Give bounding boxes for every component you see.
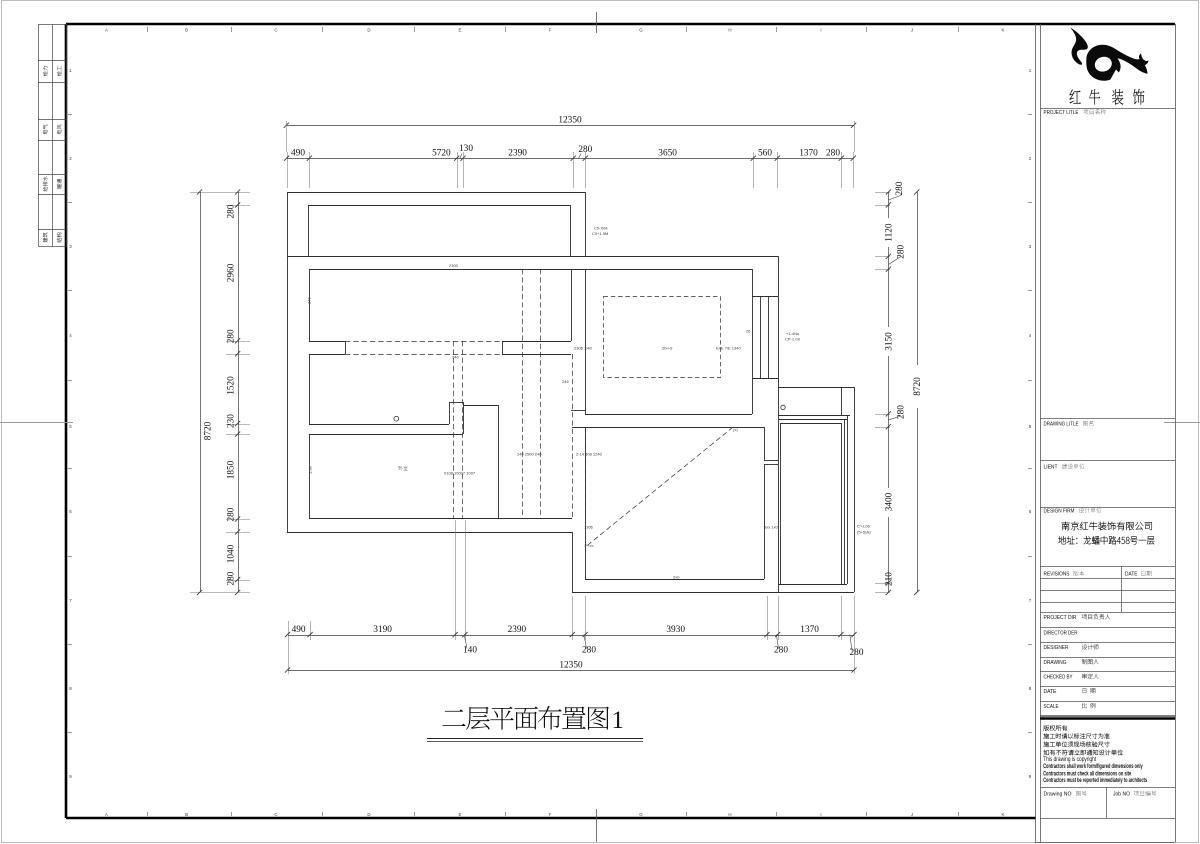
svg-text:DATE: DATE: [1044, 689, 1057, 695]
svg-text:2390: 2390: [508, 149, 527, 159]
svg-text:1: 1: [1029, 68, 1032, 73]
svg-text:1306: 1306: [584, 525, 594, 530]
svg-text:CHECKED BY: CHECKED BY: [1044, 675, 1073, 681]
svg-text:2br+9: 2br+9: [662, 346, 673, 351]
svg-text:CP-1.0X: CP-1.0X: [785, 337, 800, 342]
svg-text:246: 246: [562, 379, 569, 384]
svg-text:9: 9: [69, 774, 72, 779]
svg-text:E: E: [459, 28, 462, 33]
svg-text:E4E 7/E 1340: E4E 7/E 1340: [716, 346, 741, 351]
svg-text:F: F: [549, 812, 552, 817]
svg-text:1370: 1370: [799, 149, 818, 159]
svg-text:6: 6: [69, 509, 72, 514]
svg-text:E: E: [459, 812, 462, 817]
svg-text:C0+1.5M: C0+1.5M: [592, 231, 608, 236]
svg-text:280: 280: [582, 646, 596, 656]
svg-text:5720: 5720: [432, 149, 451, 159]
svg-text:12350: 12350: [559, 661, 583, 671]
svg-text:2: 2: [69, 156, 72, 161]
svg-text:SCALE: SCALE: [1044, 704, 1059, 710]
svg-text:6: 6: [1029, 509, 1032, 514]
svg-text:DESIGNER: DESIGNER: [1044, 645, 1069, 651]
svg-text:26: 26: [746, 329, 751, 334]
svg-text:1120: 1120: [885, 223, 895, 242]
svg-text:1040: 1040: [227, 544, 237, 563]
svg-text:1: 1: [69, 68, 72, 73]
svg-text:2: 2: [1029, 156, 1032, 161]
svg-text:P+xx: P+xx: [585, 543, 594, 548]
svg-text:7: 7: [1029, 598, 1032, 603]
svg-text:A: A: [105, 812, 108, 817]
svg-text:4: 4: [69, 333, 72, 338]
svg-text:DRAWING: DRAWING: [1044, 660, 1067, 666]
svg-text:G: G: [639, 812, 643, 817]
svg-text:K: K: [1002, 28, 1005, 33]
svg-text:7: 7: [69, 598, 72, 603]
svg-text:I: I: [820, 28, 821, 33]
svg-text:3150: 3150: [885, 332, 895, 351]
svg-text:280: 280: [774, 646, 788, 656]
svg-text:3190: 3190: [373, 625, 392, 635]
svg-text:3930: 3930: [666, 625, 685, 635]
svg-text:(x): (x): [733, 427, 738, 432]
svg-text:210: 210: [885, 572, 895, 586]
svg-text:2960: 2960: [227, 263, 237, 282]
svg-text:G: G: [639, 28, 643, 33]
svg-text:280: 280: [578, 145, 592, 155]
svg-text:C5-X04: C5-X04: [594, 226, 608, 231]
svg-text:130: 130: [459, 144, 473, 154]
svg-text:Contractors must be reported i: Contractors must be reported immediately…: [1043, 778, 1147, 784]
svg-text:C: C: [274, 812, 277, 817]
svg-text:DATE: DATE: [1125, 572, 1138, 578]
svg-text:A: A: [105, 28, 108, 33]
svg-text:PROJECT LITLE: PROJECT LITLE: [1044, 110, 1079, 116]
svg-text:F: F: [549, 28, 552, 33]
svg-text:H: H: [728, 28, 731, 33]
svg-text:This drawing is copyright: This drawing is copyright: [1043, 757, 1096, 763]
svg-text:REVISIONS: REVISIONS: [1044, 572, 1070, 578]
svg-text:280: 280: [896, 244, 906, 258]
svg-text:490: 490: [292, 625, 306, 635]
svg-text:240 2500 240: 240 2500 240: [517, 452, 542, 457]
svg-text:5: 5: [69, 424, 72, 429]
svg-text:2306 1/40: 2306 1/40: [574, 346, 593, 351]
svg-text:0108 10007 1007: 0108 10007 1007: [444, 471, 476, 476]
svg-text:C: C: [274, 28, 277, 33]
svg-text:K: K: [1002, 812, 1005, 817]
svg-text:490: 490: [291, 149, 305, 159]
svg-text:230: 230: [227, 414, 237, 428]
svg-text:Drawing NO: Drawing NO: [1044, 792, 1073, 798]
svg-text:240: 240: [307, 297, 312, 304]
svg-text:280: 280: [227, 507, 237, 521]
svg-text:C'+L06: C'+L06: [857, 524, 870, 529]
svg-text:8720: 8720: [913, 377, 923, 396]
svg-text:1.98: 1.98: [308, 465, 313, 474]
svg-text:9: 9: [1029, 774, 1032, 779]
svg-text:B: B: [185, 812, 188, 817]
svg-text:Contractors shall work form/fi: Contractors shall work form/figured dime…: [1043, 764, 1143, 770]
svg-text:280: 280: [227, 329, 237, 343]
svg-text:5: 5: [1029, 424, 1032, 429]
svg-text:1520: 1520: [227, 376, 237, 395]
svg-text:J: J: [911, 812, 913, 817]
svg-text:D: D: [367, 28, 370, 33]
svg-text:Job NO: Job NO: [1113, 792, 1131, 798]
svg-text:DESIGN FIRM: DESIGN FIRM: [1044, 509, 1075, 515]
svg-text:DIRECTOR DER: DIRECTOR DER: [1044, 631, 1078, 637]
svg-text:LIENT: LIENT: [1044, 465, 1059, 471]
svg-text:1: 1: [612, 707, 625, 734]
svg-text:D: D: [367, 812, 370, 817]
svg-text:1850: 1850: [227, 460, 237, 479]
svg-text:I: I: [820, 812, 821, 817]
svg-text:3xx 1x0: 3xx 1x0: [764, 525, 779, 530]
svg-text:280: 280: [227, 204, 237, 218]
svg-text:J: J: [911, 28, 913, 33]
svg-text:2300: 2300: [449, 263, 459, 268]
svg-text:3400: 3400: [885, 492, 895, 511]
svg-text:+1-4Nu: +1-4Nu: [786, 331, 799, 336]
svg-text:B: B: [185, 28, 188, 33]
svg-text:3: 3: [1029, 244, 1032, 249]
svg-text:2x0: 2x0: [673, 575, 680, 580]
svg-text:Contractors must check all dim: Contractors must check all dimensions on…: [1043, 771, 1131, 777]
svg-text:140: 140: [463, 646, 477, 656]
svg-text:H: H: [728, 812, 731, 817]
svg-text:280: 280: [895, 181, 905, 195]
svg-text:280: 280: [227, 571, 237, 585]
svg-text:1370: 1370: [800, 625, 819, 635]
svg-text:8720: 8720: [204, 421, 214, 440]
svg-text:280: 280: [826, 149, 840, 159]
svg-text:240: 240: [452, 355, 459, 360]
svg-text:DRAWING LITLE: DRAWING LITLE: [1044, 422, 1079, 428]
svg-text:8: 8: [69, 686, 72, 691]
svg-text:PROJECT DIR: PROJECT DIR: [1044, 615, 1077, 621]
svg-text:12350: 12350: [558, 116, 582, 126]
svg-text:(5+5)Az: (5+5)Az: [857, 530, 871, 535]
svg-text:8: 8: [1029, 686, 1032, 691]
svg-text:3650: 3650: [658, 149, 677, 159]
svg-text:560: 560: [758, 149, 772, 159]
svg-text:2390: 2390: [508, 625, 527, 635]
svg-text:3: 3: [69, 244, 72, 249]
svg-text:2-14 308 1240: 2-14 308 1240: [576, 452, 603, 457]
svg-text:4: 4: [1029, 333, 1032, 338]
